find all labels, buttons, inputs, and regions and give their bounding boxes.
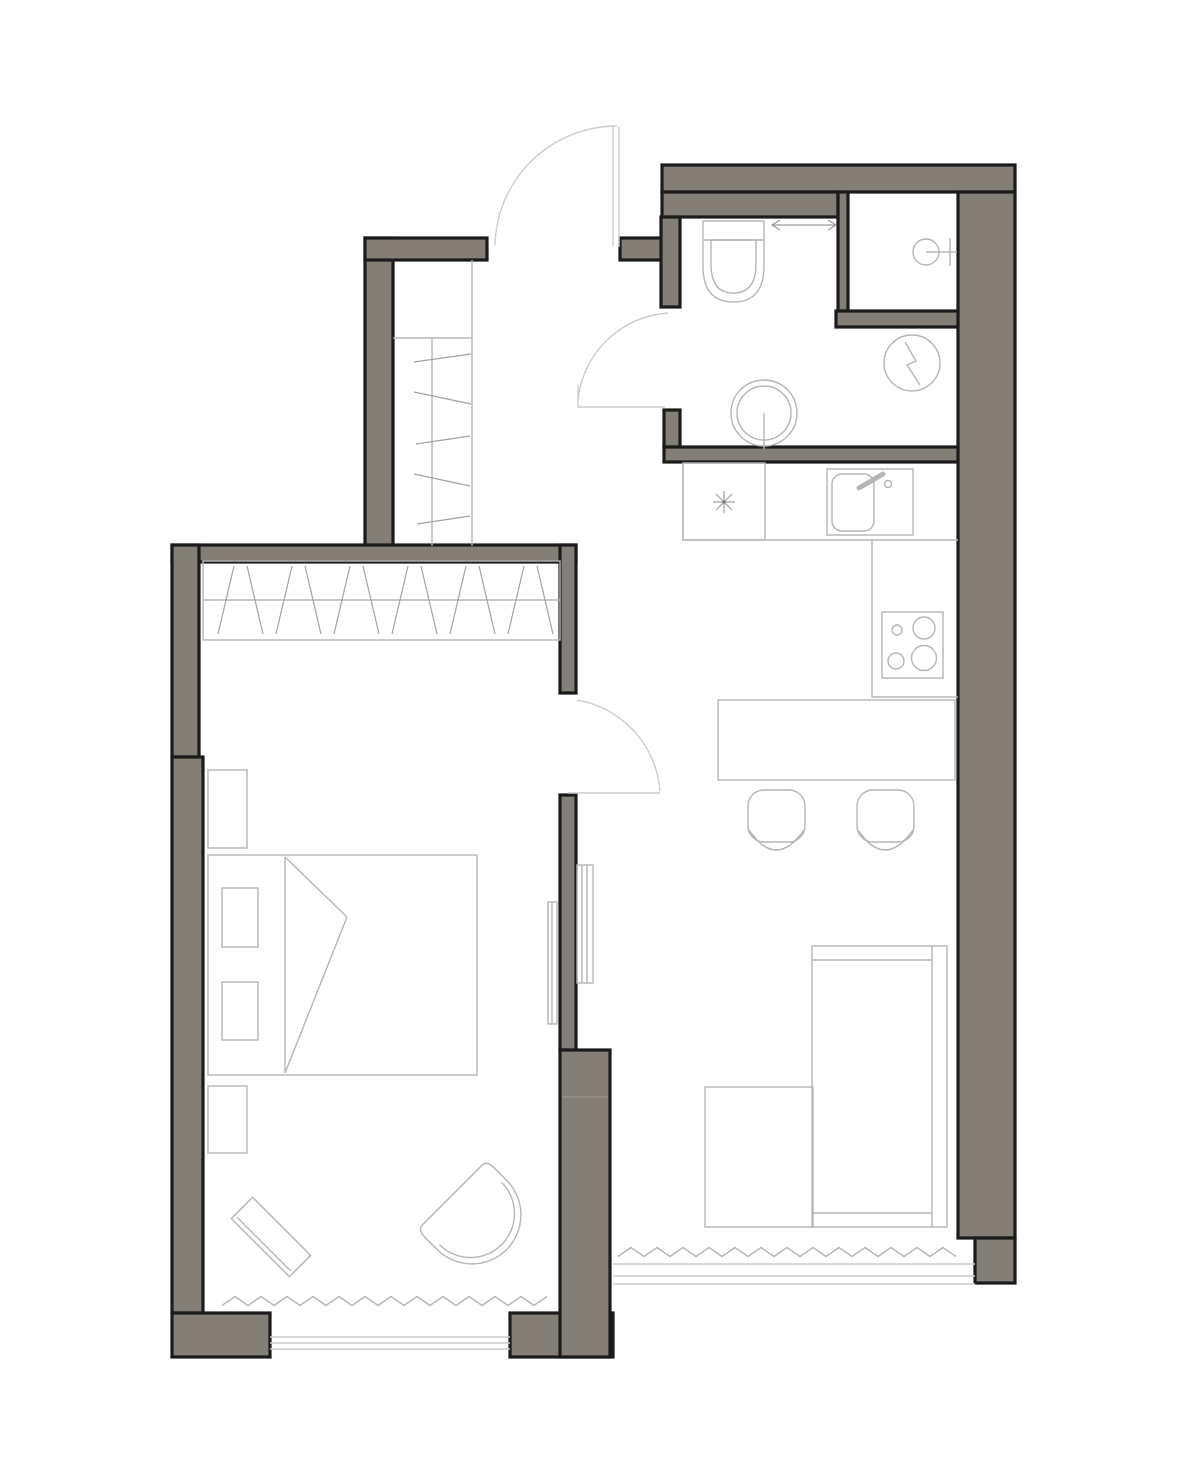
floor-plan-svg — [0, 0, 1200, 1471]
wall-bath-west-upper — [661, 217, 680, 307]
wall-entry-top — [365, 238, 487, 260]
wall-bath-bottom — [664, 447, 960, 462]
wall-bedroom-top — [172, 545, 576, 562]
wall-divider-mid — [560, 795, 576, 1050]
wall-shower-partition — [838, 192, 848, 311]
wall-toilet-top — [662, 192, 838, 217]
wall-east — [958, 192, 1015, 1238]
wall-bath-west-stub — [664, 410, 680, 447]
wall-entry-left — [365, 238, 393, 546]
wall-east-step — [975, 1238, 1015, 1283]
wall-divider-lower — [560, 1050, 610, 1357]
wall-bedroom-left-upper — [172, 545, 199, 757]
wall-bedroom-left-lower — [172, 757, 203, 1313]
floor-plan-page — [0, 0, 1200, 1471]
wall-divider-upper — [560, 545, 576, 693]
wall-northeast-top — [662, 165, 1015, 192]
wall-shower-bottom — [836, 311, 960, 327]
wall-bedroom-bottom-left — [172, 1313, 270, 1357]
